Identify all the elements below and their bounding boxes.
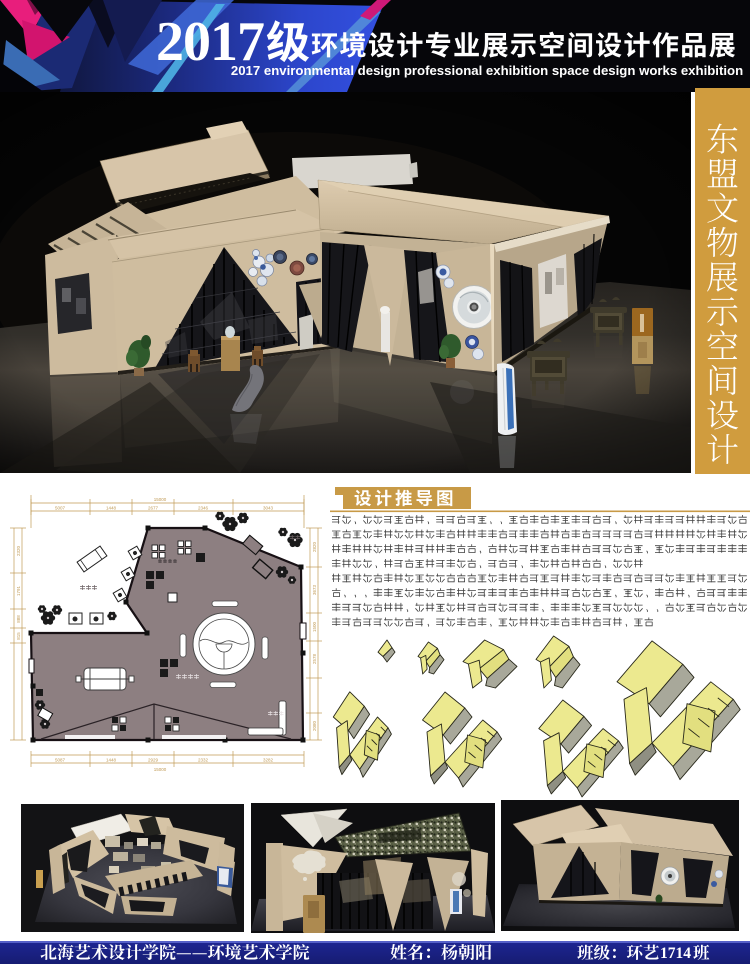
svg-text:2346: 2346 — [198, 506, 209, 511]
svg-text:2017 environmental design prof: 2017 environmental design professional e… — [231, 63, 743, 78]
svg-text:2080: 2080 — [312, 720, 317, 731]
svg-text:3282: 3282 — [263, 758, 274, 763]
svg-text:5007: 5007 — [55, 506, 66, 511]
svg-text:1500: 1500 — [312, 621, 317, 632]
svg-text:888: 888 — [16, 615, 21, 623]
svg-text:2320: 2320 — [16, 545, 21, 556]
svg-text:2929: 2929 — [148, 758, 159, 763]
svg-text:2820: 2820 — [312, 541, 317, 552]
svg-text:2578: 2578 — [312, 653, 317, 664]
svg-text:2332: 2332 — [198, 758, 209, 763]
svg-text:1714: 1714 — [660, 945, 691, 962]
svg-text:1791: 1791 — [16, 585, 21, 596]
svg-text:3043: 3043 — [263, 506, 274, 511]
svg-text:1448: 1448 — [106, 758, 117, 763]
svg-text:1448: 1448 — [106, 506, 117, 511]
svg-text:15000: 15000 — [154, 497, 167, 502]
svg-text:15000: 15000 — [154, 767, 167, 772]
svg-text:5087: 5087 — [55, 758, 66, 763]
svg-text:3673: 3673 — [312, 584, 317, 595]
svg-text:2677: 2677 — [148, 506, 159, 511]
svg-text:815: 815 — [16, 632, 21, 640]
